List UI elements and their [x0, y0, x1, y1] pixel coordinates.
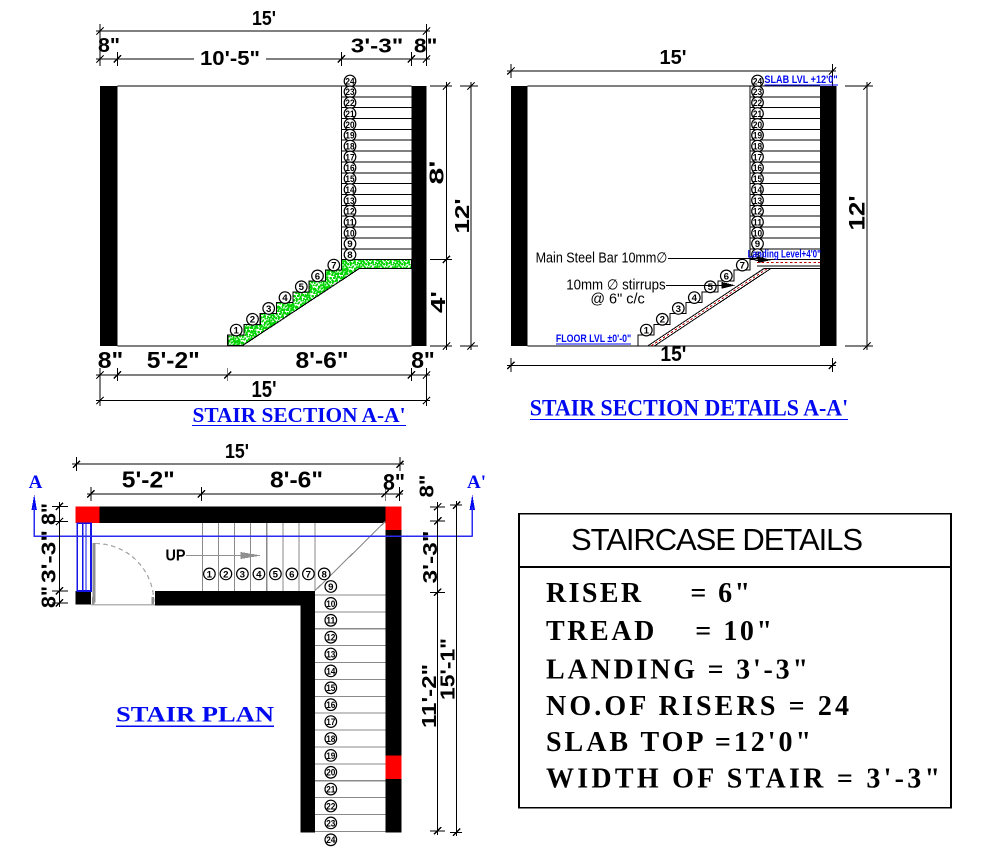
svg-text:FLOOR LVL ±0'-0": FLOOR LVL ±0'-0" [556, 333, 631, 345]
svg-text:UP: UP [166, 548, 186, 565]
svg-text:10: 10 [326, 599, 335, 610]
svg-text:6: 6 [315, 271, 320, 282]
svg-text:12': 12' [452, 199, 474, 234]
svg-text:3: 3 [266, 304, 271, 315]
svg-text:3: 3 [240, 569, 245, 580]
svg-text:LANDING = 3'-3": LANDING = 3'-3" [546, 655, 808, 686]
svg-text:8": 8" [98, 35, 120, 57]
svg-text:18: 18 [326, 734, 335, 745]
svg-text:8": 8" [98, 347, 124, 373]
svg-text:13: 13 [326, 649, 335, 660]
svg-text:2: 2 [223, 569, 228, 580]
svg-text:STAIR SECTION A-A': STAIR SECTION A-A' [193, 403, 406, 427]
svg-text:11: 11 [326, 616, 336, 627]
svg-text:Main Steel Bar 10mm∅: Main Steel Bar 10mm∅ [536, 251, 668, 267]
svg-text:17: 17 [326, 717, 335, 728]
svg-text:4: 4 [256, 569, 262, 580]
svg-text:19: 19 [326, 751, 335, 762]
svg-text:14: 14 [326, 666, 336, 677]
svg-text:8': 8' [427, 161, 449, 185]
svg-text:15': 15' [225, 441, 249, 463]
svg-text:@ 6" c/c: @ 6" c/c [590, 291, 644, 307]
svg-text:1: 1 [644, 326, 650, 337]
svg-text:5'-2": 5'-2" [122, 467, 175, 493]
svg-text:24: 24 [326, 835, 336, 846]
svg-text:15'-1": 15'-1" [438, 638, 460, 700]
svg-text:A: A [29, 472, 43, 493]
svg-text:15': 15' [660, 47, 687, 69]
svg-text:3'-3": 3'-3" [351, 35, 404, 57]
svg-text:A': A' [467, 472, 486, 493]
svg-text:16: 16 [326, 700, 335, 711]
svg-text:3'-3": 3'-3" [39, 530, 61, 583]
svg-text:1: 1 [234, 326, 240, 337]
svg-text:7: 7 [740, 260, 745, 271]
svg-text:10'-5": 10'-5" [200, 48, 260, 70]
svg-text:3'-3": 3'-3" [420, 531, 442, 584]
svg-text:8": 8" [411, 347, 435, 373]
svg-text:8": 8" [39, 503, 61, 525]
svg-text:STAIR PLAN: STAIR PLAN [116, 702, 274, 727]
svg-text:1: 1 [207, 569, 213, 580]
svg-text:STAIRCASE DETAILS: STAIRCASE DETAILS [571, 522, 863, 557]
svg-text:5'-2": 5'-2" [147, 347, 200, 373]
svg-text:15': 15' [252, 8, 276, 30]
svg-text:15': 15' [252, 376, 277, 402]
svg-text:8": 8" [417, 475, 439, 498]
svg-text:8: 8 [322, 569, 327, 580]
svg-text:5: 5 [299, 282, 305, 293]
svg-text:20: 20 [326, 768, 335, 779]
svg-text:7: 7 [306, 569, 311, 580]
svg-text:23: 23 [326, 818, 335, 829]
svg-text:SLAB LVL +12'0": SLAB LVL +12'0" [764, 74, 837, 86]
svg-text:15': 15' [660, 343, 686, 366]
svg-text:SLAB TOP =12'0": SLAB TOP =12'0" [546, 727, 811, 758]
svg-text:8": 8" [414, 35, 438, 57]
svg-text:RISER = 6": RISER = 6" [546, 578, 750, 609]
svg-text:8": 8" [39, 586, 61, 608]
svg-text:8": 8" [383, 469, 405, 495]
svg-text:21: 21 [326, 785, 336, 796]
svg-text:4: 4 [282, 293, 288, 304]
svg-text:8: 8 [347, 250, 352, 261]
svg-text:12: 12 [326, 633, 335, 644]
svg-text:3: 3 [676, 304, 681, 315]
svg-text:4: 4 [692, 293, 698, 304]
svg-text:2: 2 [250, 315, 255, 326]
svg-text:12': 12' [845, 196, 870, 231]
svg-text:STAIR SECTION DETAILS A-A': STAIR SECTION DETAILS A-A' [530, 396, 848, 421]
svg-text:8'-6": 8'-6" [270, 467, 323, 493]
svg-text:5: 5 [273, 569, 279, 580]
svg-text:22: 22 [326, 801, 335, 812]
svg-text:2: 2 [660, 315, 665, 326]
svg-text:9: 9 [328, 582, 333, 593]
svg-text:6: 6 [289, 569, 294, 580]
svg-text:15: 15 [326, 683, 336, 694]
svg-text:6: 6 [724, 271, 729, 282]
svg-text:4': 4' [428, 291, 450, 313]
svg-text:5: 5 [708, 282, 714, 293]
svg-text:7: 7 [331, 260, 336, 271]
svg-text:8'-6": 8'-6" [296, 347, 349, 373]
